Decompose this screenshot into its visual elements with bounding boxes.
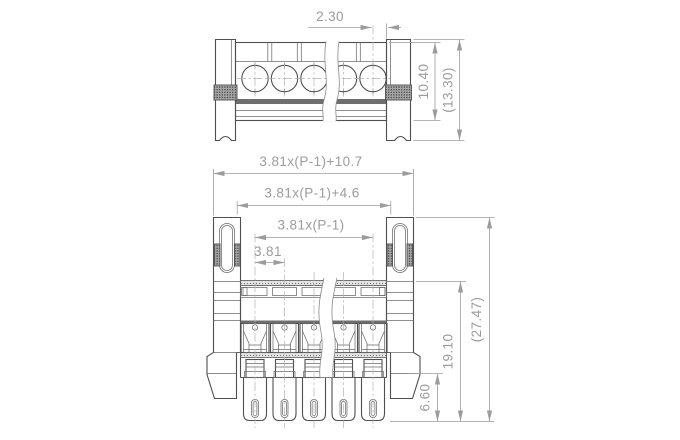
dim-label-overall-height-top: (13.30) <box>441 67 456 113</box>
dim-pitch: 3.81 <box>254 244 285 263</box>
connector-drawing-canvas: 2.30 10.40 (13.30) <box>0 0 680 440</box>
right-knurl-a <box>387 244 393 266</box>
dim-body-height: 10.40 <box>389 43 441 121</box>
front-view: 3.81x(P-1)+10.7 3.81x(P-1)+4.6 3.81x(P-1… <box>207 154 495 428</box>
top-view-right-flange <box>386 40 412 141</box>
top-view-contact-strip <box>236 99 387 104</box>
front-left-flange <box>207 218 241 399</box>
dim-label-pin-length: 6.60 <box>418 384 433 412</box>
dim-pole-span: 3.81x(P-1) <box>255 218 373 238</box>
dim-housing-height: 19.10 <box>441 282 461 422</box>
dim-label-overall-width: 3.81x(P-1)+10.7 <box>259 154 362 169</box>
front-housing <box>241 281 387 378</box>
right-knurl-b <box>407 244 413 266</box>
dim-pin-length: 6.60 <box>418 374 438 422</box>
top-view-left-knurl <box>214 85 237 100</box>
collar-strip <box>241 353 387 358</box>
dim-label-screw-to-flange: 2.30 <box>316 9 344 24</box>
dim-label-housing-height: 19.10 <box>441 334 456 370</box>
left-knurl-b <box>235 244 241 266</box>
dim-label-pole-span: 3.81x(P-1) <box>277 218 344 233</box>
left-knurl-a <box>215 244 221 266</box>
dim-label-flange-inner-width: 3.81x(P-1)+4.6 <box>264 186 359 201</box>
top-cap-band <box>241 281 387 286</box>
top-view-left-flange <box>214 40 237 141</box>
top-view-right-knurl <box>386 85 412 100</box>
dim-label-overall-height-front: (27.47) <box>469 297 484 343</box>
top-view-housing <box>236 43 387 121</box>
dim-flange-inner-width: 3.81x(P-1)+4.6 <box>237 186 391 215</box>
front-right-flange <box>387 218 421 399</box>
dim-overall-height-front: (27.47) <box>469 218 490 422</box>
top-view-break-lines <box>323 42 340 122</box>
technical-drawing-page: 2.30 10.40 (13.30) <box>0 0 680 440</box>
dim-label-pitch: 3.81 <box>254 244 282 259</box>
top-view: 2.30 10.40 (13.30) <box>214 9 465 141</box>
dim-label-body-height: 10.40 <box>416 64 431 100</box>
